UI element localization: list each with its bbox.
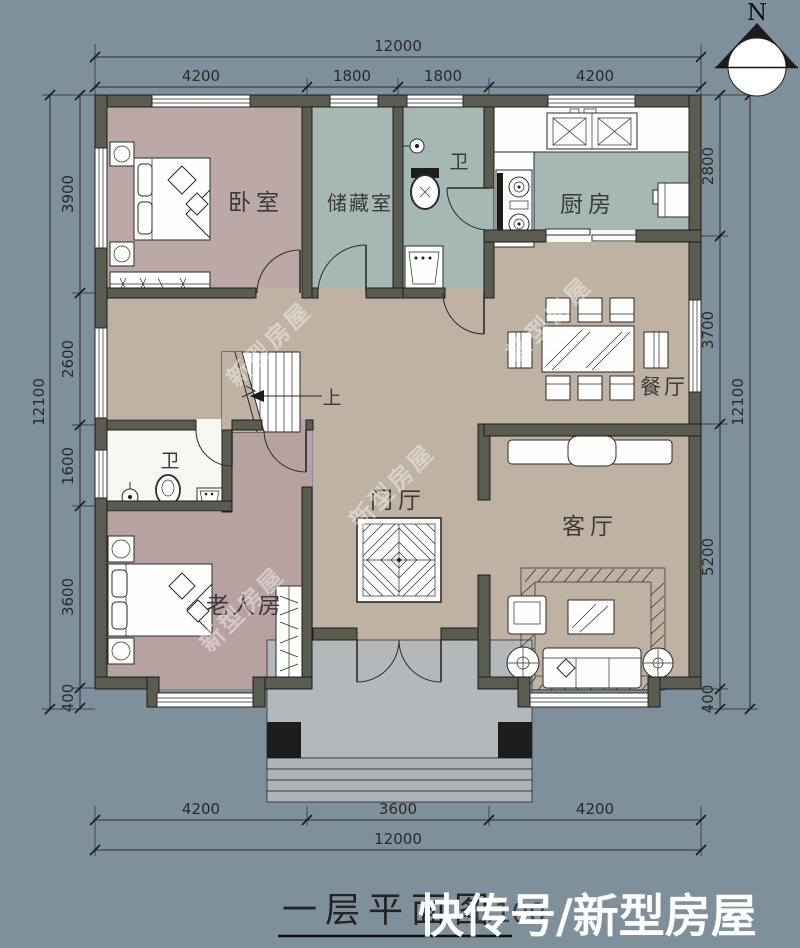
dim-right-overall: 12100 xyxy=(729,378,747,426)
porch-step xyxy=(267,758,532,769)
window xyxy=(548,95,635,107)
window xyxy=(330,95,378,107)
north-compass: N xyxy=(715,0,798,96)
bathroom-top-label: 卫 xyxy=(449,151,468,173)
pillow xyxy=(138,164,152,196)
dim-left-seg: 2600 xyxy=(59,340,77,378)
dim-bottom-overall: 12000 xyxy=(374,830,422,848)
window xyxy=(95,328,107,418)
nightstand xyxy=(110,142,134,166)
dim-right-seg: 5200 xyxy=(699,538,717,576)
foyer-medallion xyxy=(357,518,441,602)
dim-left-seg: 1600 xyxy=(59,447,77,485)
porch-step xyxy=(267,769,532,780)
bedroom-label: 卧室 xyxy=(228,190,284,216)
fridge xyxy=(658,183,689,217)
bathroom-left-label: 卫 xyxy=(160,450,179,472)
floor-plan-page: 卧室 储藏室 卫 厨房 餐厅 卫 门厅 老人房 客厅 上 12000 4200 … xyxy=(0,0,800,948)
dim-top-overall: 12000 xyxy=(374,37,422,55)
floor-plan-drawing: 卧室 储藏室 卫 厨房 餐厅 卫 门厅 老人房 客厅 上 12000 4200 … xyxy=(0,0,800,948)
dim-bottom-seg: 3600 xyxy=(379,800,417,818)
chair xyxy=(578,376,602,400)
nightstand xyxy=(110,242,134,266)
window xyxy=(95,450,107,498)
pillow xyxy=(112,570,127,597)
north-label: N xyxy=(747,0,767,26)
porch-step xyxy=(267,780,532,791)
bay-window xyxy=(530,693,648,707)
living-label: 客厅 xyxy=(562,514,618,540)
dim-bottom-seg: 4200 xyxy=(182,800,220,818)
dim-top-seg: 4200 xyxy=(576,67,614,85)
storage-label: 储藏室 xyxy=(327,191,393,215)
porch-pillar xyxy=(498,722,532,758)
bay-window xyxy=(157,693,253,707)
dimensions-right: 2800 3700 5200 400 12100 xyxy=(699,90,758,714)
kitchen-label: 厨房 xyxy=(560,192,616,218)
watermark-bottom: 快传号/新型房屋 xyxy=(418,889,757,943)
dining-label: 餐厅 xyxy=(640,375,688,399)
dimensions-left: 12100 3900 2600 1600 3600 400 xyxy=(30,90,95,714)
dim-left-seg: 3600 xyxy=(59,578,77,616)
dim-top-seg: 4200 xyxy=(182,67,220,85)
dim-right-seg: 2800 xyxy=(699,147,717,185)
dim-right-seg: 400 xyxy=(699,685,717,714)
dim-top-seg: 1800 xyxy=(333,67,371,85)
window xyxy=(407,95,463,107)
coffee-table xyxy=(568,600,614,634)
tv xyxy=(568,436,616,466)
chair xyxy=(644,332,668,368)
dining-table xyxy=(542,326,634,372)
pillow xyxy=(112,602,127,629)
stairs-up-label: 上 xyxy=(322,387,341,409)
window xyxy=(95,148,107,248)
window xyxy=(152,95,250,107)
title-block: 一层平面图 1:100 快传号/新型房屋 xyxy=(278,889,757,943)
dim-left-seg: 3900 xyxy=(59,175,77,213)
dimensions-top: 12000 4200 1800 1800 4200 xyxy=(90,37,706,95)
chair xyxy=(610,376,634,400)
pillow xyxy=(138,202,152,234)
dimensions-bottom: 4200 3600 4200 12000 xyxy=(90,800,706,856)
dim-top-seg: 1800 xyxy=(424,67,462,85)
chair xyxy=(546,376,570,400)
chair xyxy=(610,298,634,322)
dim-right-seg: 3700 xyxy=(699,311,717,349)
dim-left-seg: 400 xyxy=(59,684,77,713)
porch-pillar xyxy=(267,722,301,758)
dim-bottom-seg: 4200 xyxy=(576,800,614,818)
dim-left-overall: 12100 xyxy=(30,378,48,426)
fridge-handle xyxy=(653,190,658,204)
